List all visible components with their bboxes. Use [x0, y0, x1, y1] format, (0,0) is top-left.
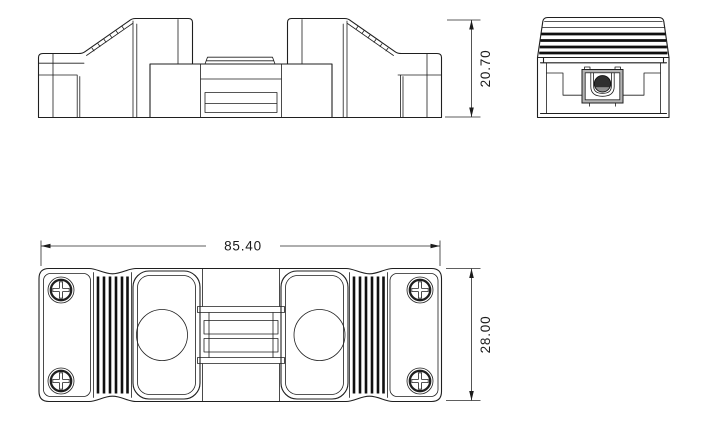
plan-right-bore: [294, 310, 345, 361]
plan-center-top-channel: [198, 269, 285, 313]
plan-screw-bottom-right: [407, 368, 433, 394]
plan-left-pad-outer: [133, 271, 200, 399]
dim-depth-label: 28.00: [478, 316, 493, 354]
dim-width-arrow-right: [431, 244, 441, 249]
dim-height-arrow-top: [469, 20, 474, 30]
front-right-block-edges: [302, 20, 347, 118]
dimension-plan-width: 85.40: [41, 239, 440, 267]
plan-body-outline: [39, 269, 442, 402]
dim-height-arrow-bottom: [469, 108, 474, 118]
side-view: [538, 18, 670, 118]
side-cap-base-lines: [538, 58, 670, 63]
plan-center-bottom-channel: [198, 358, 285, 402]
front-center-body: [150, 64, 332, 118]
dim-depth-arrow-top: [469, 269, 474, 279]
dim-width-label: 85.40: [224, 239, 262, 254]
front-right-endblock-detail: [398, 54, 442, 118]
plan-right-ribs: [354, 277, 384, 394]
technical-drawing-canvas: 20.70 85.40 28.00: [0, 0, 704, 422]
plan-right-pad-outer: [281, 271, 348, 399]
orthographic-views-svg: 20.70 85.40 28.00: [0, 0, 704, 422]
front-center-recess-lines: [201, 64, 282, 118]
front-right-outline: [288, 19, 442, 118]
plan-screw-top-left: [48, 277, 74, 303]
front-left-block-edges: [133, 20, 178, 118]
side-cap-outline: [538, 18, 670, 58]
dimension-front-height: 20.70: [445, 20, 493, 117]
plan-screw-bottom-left: [48, 368, 74, 394]
dim-depth-lines: [446, 269, 481, 401]
plan-left-bore: [137, 310, 188, 361]
plan-left-pad-inner: [138, 276, 196, 395]
front-left-ramp-serrations: [92, 26, 124, 50]
front-left-endblock-detail: [39, 54, 85, 118]
dim-width-arrow-left: [41, 244, 51, 249]
dimension-plan-depth: 28.00: [446, 269, 493, 401]
dim-height-label: 20.70: [478, 50, 493, 88]
front-right-ramp-serrations: [356, 26, 388, 50]
plan-center-rails: [209, 313, 273, 358]
plan-left-ribs: [98, 277, 128, 394]
dim-height-lines: [445, 20, 481, 117]
front-center-tab: [205, 57, 275, 64]
plan-view: [39, 269, 442, 402]
plan-screw-top-right: [407, 277, 433, 303]
plan-center-bar-tabs: [204, 321, 278, 353]
front-view: [39, 19, 442, 118]
side-cap-ribs: [539, 34, 667, 53]
front-left-outline: [39, 19, 193, 118]
plan-center-bars: [209, 321, 273, 353]
dim-depth-arrow-bottom: [469, 391, 474, 401]
